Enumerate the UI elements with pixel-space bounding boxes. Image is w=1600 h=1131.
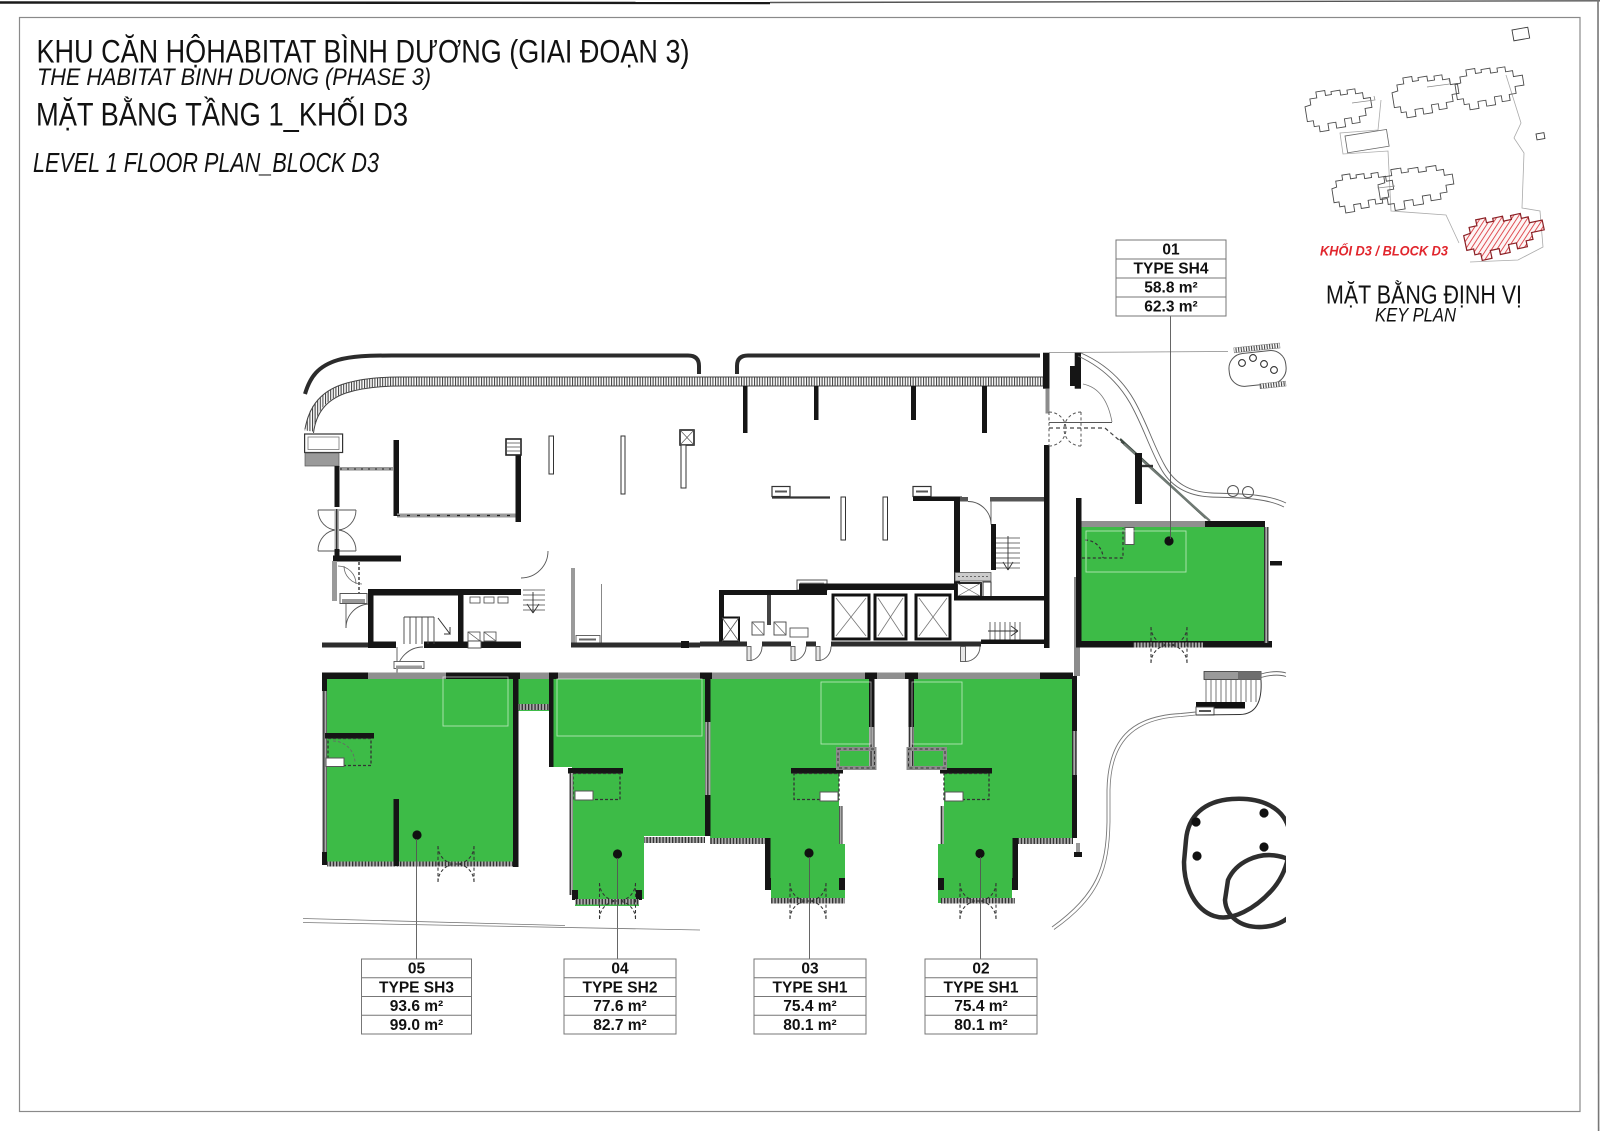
svg-text:LEVEL 1 FLOOR PLAN_BLOCK D3: LEVEL 1 FLOOR PLAN_BLOCK D3 [33,147,380,178]
svg-text:KHỐI D3 / BLOCK D3: KHỐI D3 / BLOCK D3 [1320,244,1448,259]
svg-text:82.7 m²: 82.7 m² [593,1017,646,1034]
svg-text:03: 03 [801,961,819,978]
svg-text:80.1 m²: 80.1 m² [783,1017,836,1034]
svg-text:99.0 m²: 99.0 m² [390,1017,443,1034]
svg-text:62.3 m²: 62.3 m² [1144,299,1197,316]
svg-text:93.6 m²: 93.6 m² [390,998,443,1015]
svg-text:02: 02 [972,961,989,978]
svg-text:TYPE SH4: TYPE SH4 [1134,261,1209,278]
svg-text:KEY PLAN: KEY PLAN [1375,306,1456,327]
svg-text:75.4 m²: 75.4 m² [954,998,1007,1015]
svg-text:THE HABITAT BINH DUONG (PHASE: THE HABITAT BINH DUONG (PHASE 3) [37,64,431,91]
svg-text:TYPE SH2: TYPE SH2 [583,979,658,996]
svg-text:01: 01 [1162,242,1180,259]
svg-text:77.6 m²: 77.6 m² [593,998,646,1015]
svg-text:75.4 m²: 75.4 m² [783,998,836,1015]
svg-text:MẶT BẰNG TẦNG 1_KHỐI D3: MẶT BẰNG TẦNG 1_KHỐI D3 [36,97,408,133]
svg-text:58.8 m²: 58.8 m² [1144,280,1197,297]
svg-text:TYPE SH3: TYPE SH3 [379,979,454,996]
svg-text:04: 04 [611,961,629,978]
svg-text:05: 05 [408,961,426,978]
svg-text:TYPE SH1: TYPE SH1 [944,979,1019,996]
svg-text:TYPE SH1: TYPE SH1 [773,979,848,996]
svg-text:80.1 m²: 80.1 m² [954,1017,1007,1034]
